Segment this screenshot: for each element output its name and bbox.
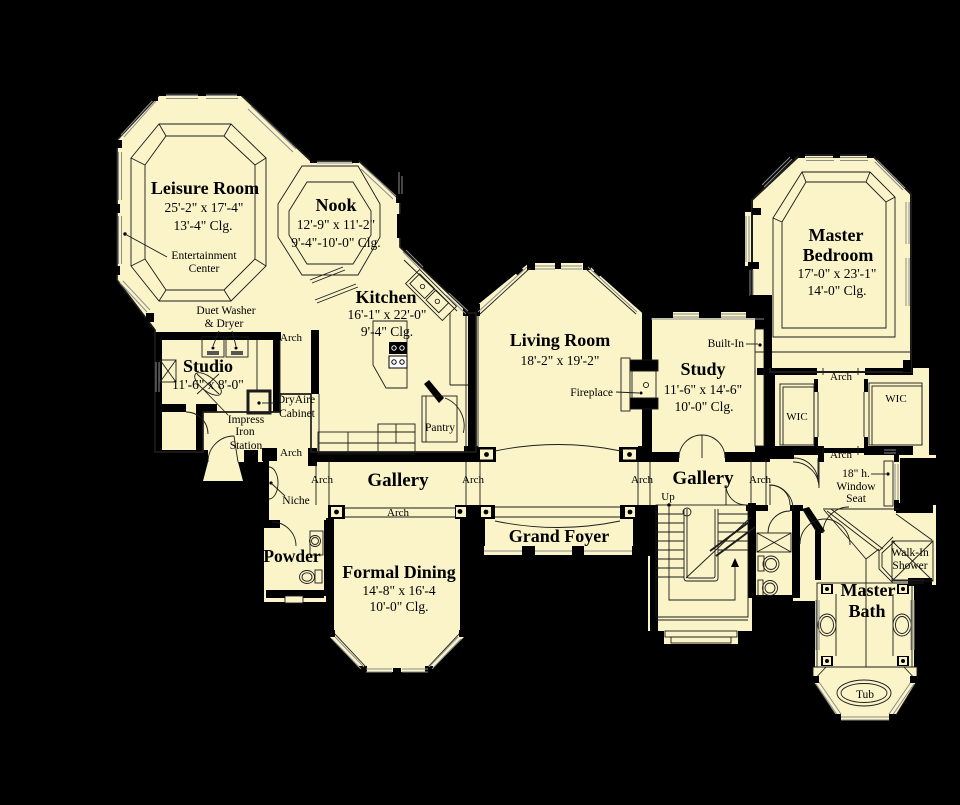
svg-text:Leisure Room: Leisure Room	[151, 178, 259, 198]
svg-text:Walk-In: Walk-In	[891, 547, 929, 559]
svg-text:Studio: Studio	[183, 356, 233, 376]
svg-text:Arch: Arch	[387, 507, 409, 519]
svg-text:Powder: Powder	[263, 546, 321, 566]
svg-text:Bedroom: Bedroom	[803, 245, 874, 265]
svg-text:Arch: Arch	[830, 371, 852, 383]
svg-text:Up: Up	[661, 491, 675, 503]
svg-text:Shower: Shower	[892, 560, 927, 572]
svg-text:Seat: Seat	[846, 493, 867, 505]
svg-text:Bath: Bath	[848, 601, 885, 621]
svg-text:Gallery: Gallery	[672, 468, 734, 489]
svg-text:Study: Study	[680, 359, 725, 379]
svg-text:Impress: Impress	[228, 414, 265, 426]
svg-text:14'-0" Clg.: 14'-0" Clg.	[808, 283, 867, 298]
svg-text:12'-9" x 11'-2": 12'-9" x 11'-2"	[297, 217, 375, 232]
svg-text:Pantry: Pantry	[425, 422, 455, 434]
svg-text:Station: Station	[230, 440, 263, 452]
svg-text:Living Room: Living Room	[510, 330, 611, 350]
svg-text:Nook: Nook	[315, 195, 356, 215]
svg-text:16'-1" x 22'-0": 16'-1" x 22'-0"	[348, 307, 427, 322]
svg-text:9'-4" Clg.: 9'-4" Clg.	[361, 324, 413, 339]
svg-text:Kitchen: Kitchen	[356, 287, 417, 307]
svg-text:10'-0" Clg.: 10'-0" Clg.	[370, 599, 429, 614]
svg-text:& Dryer: & Dryer	[205, 318, 244, 330]
svg-text:14'-8" x 16'-4: 14'-8" x 16'-4	[362, 583, 436, 598]
svg-text:Duet Washer: Duet Washer	[196, 305, 255, 317]
svg-text:Center: Center	[189, 263, 220, 275]
svg-text:Formal Dining: Formal Dining	[342, 562, 456, 582]
svg-text:Built-In: Built-In	[708, 338, 745, 350]
svg-text:18'-2" x 19'-2": 18'-2" x 19'-2"	[521, 353, 600, 368]
svg-text:11'-6" x 8'-0": 11'-6" x 8'-0"	[172, 377, 244, 392]
svg-text:Iron: Iron	[235, 426, 254, 438]
svg-text:Cabinet: Cabinet	[279, 408, 316, 420]
svg-text:WIC: WIC	[885, 393, 906, 405]
svg-text:Arch: Arch	[280, 447, 302, 459]
svg-text:Arch: Arch	[462, 474, 484, 486]
svg-text:11'-6" x 14'-6": 11'-6" x 14'-6"	[664, 382, 742, 397]
svg-text:Arch: Arch	[311, 474, 333, 486]
svg-text:Grand Foyer: Grand Foyer	[509, 526, 610, 546]
svg-text:Arch: Arch	[280, 332, 302, 344]
svg-text:Arch: Arch	[749, 474, 771, 486]
svg-text:17'-0" x 23'-1": 17'-0" x 23'-1"	[798, 266, 877, 281]
svg-text:Arch: Arch	[631, 474, 653, 486]
svg-text:Niche: Niche	[282, 495, 309, 507]
svg-text:Window: Window	[836, 481, 876, 493]
svg-text:10'-0" Clg.: 10'-0" Clg.	[675, 399, 734, 414]
svg-text:Entertainment: Entertainment	[171, 250, 237, 262]
svg-text:9'-4"-10'-0" Clg.: 9'-4"-10'-0" Clg.	[291, 235, 380, 250]
svg-text:Master: Master	[809, 225, 864, 245]
svg-text:25'-2" x 17'-4": 25'-2" x 17'-4"	[165, 200, 244, 215]
svg-text:Tub: Tub	[856, 689, 874, 701]
svg-text:18" h.: 18" h.	[842, 468, 870, 480]
svg-text:WIC: WIC	[786, 411, 807, 423]
svg-text:DryAire: DryAire	[277, 394, 315, 406]
svg-text:Arch: Arch	[830, 449, 852, 461]
svg-text:Fireplace: Fireplace	[570, 387, 613, 399]
svg-text:Gallery: Gallery	[367, 470, 429, 491]
svg-text:13'-4" Clg.: 13'-4" Clg.	[174, 218, 233, 233]
svg-text:Master: Master	[841, 580, 896, 600]
